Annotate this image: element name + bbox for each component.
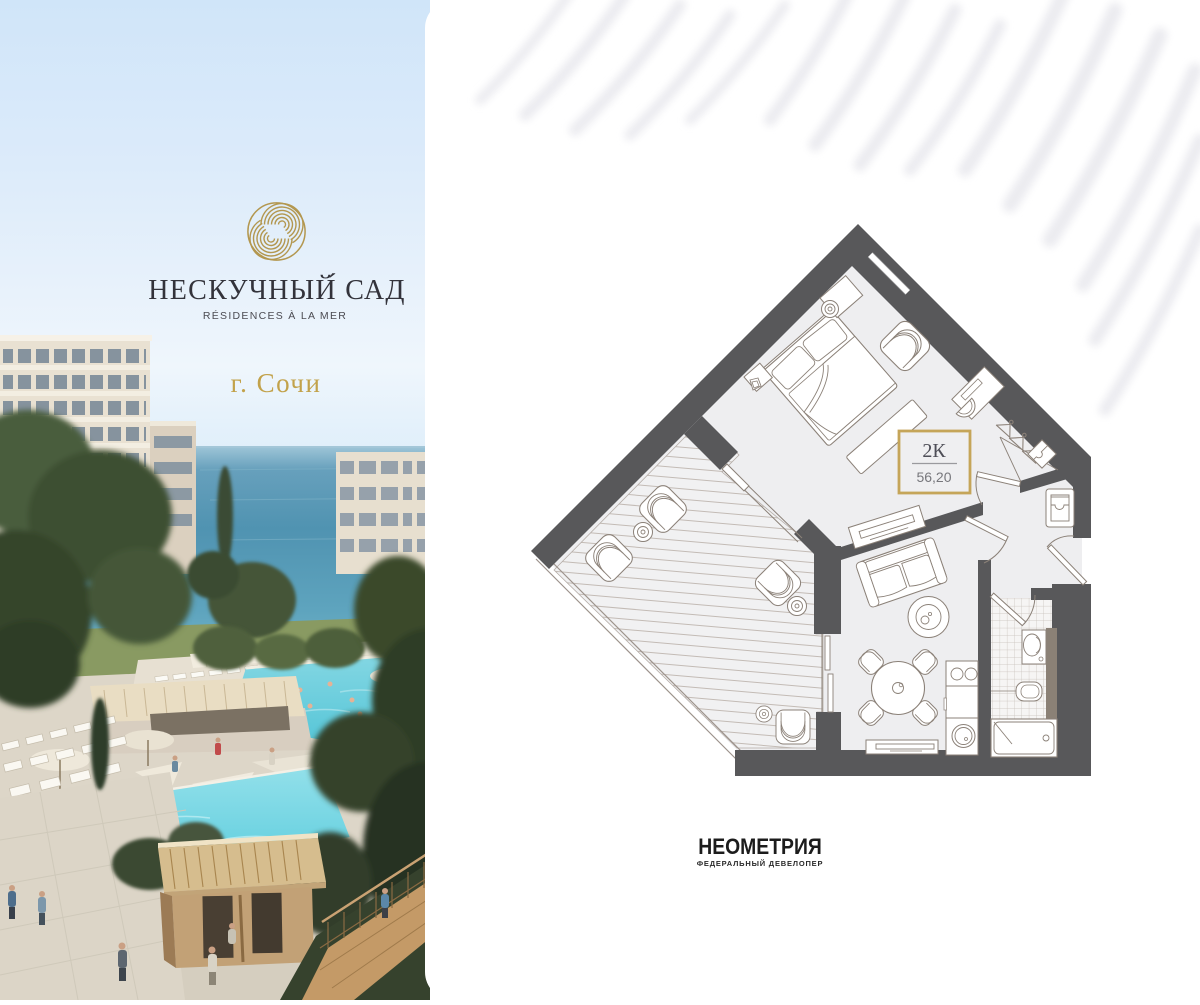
svg-text:56,20: 56,20 xyxy=(916,469,951,485)
svg-text:2К: 2К xyxy=(922,440,946,462)
